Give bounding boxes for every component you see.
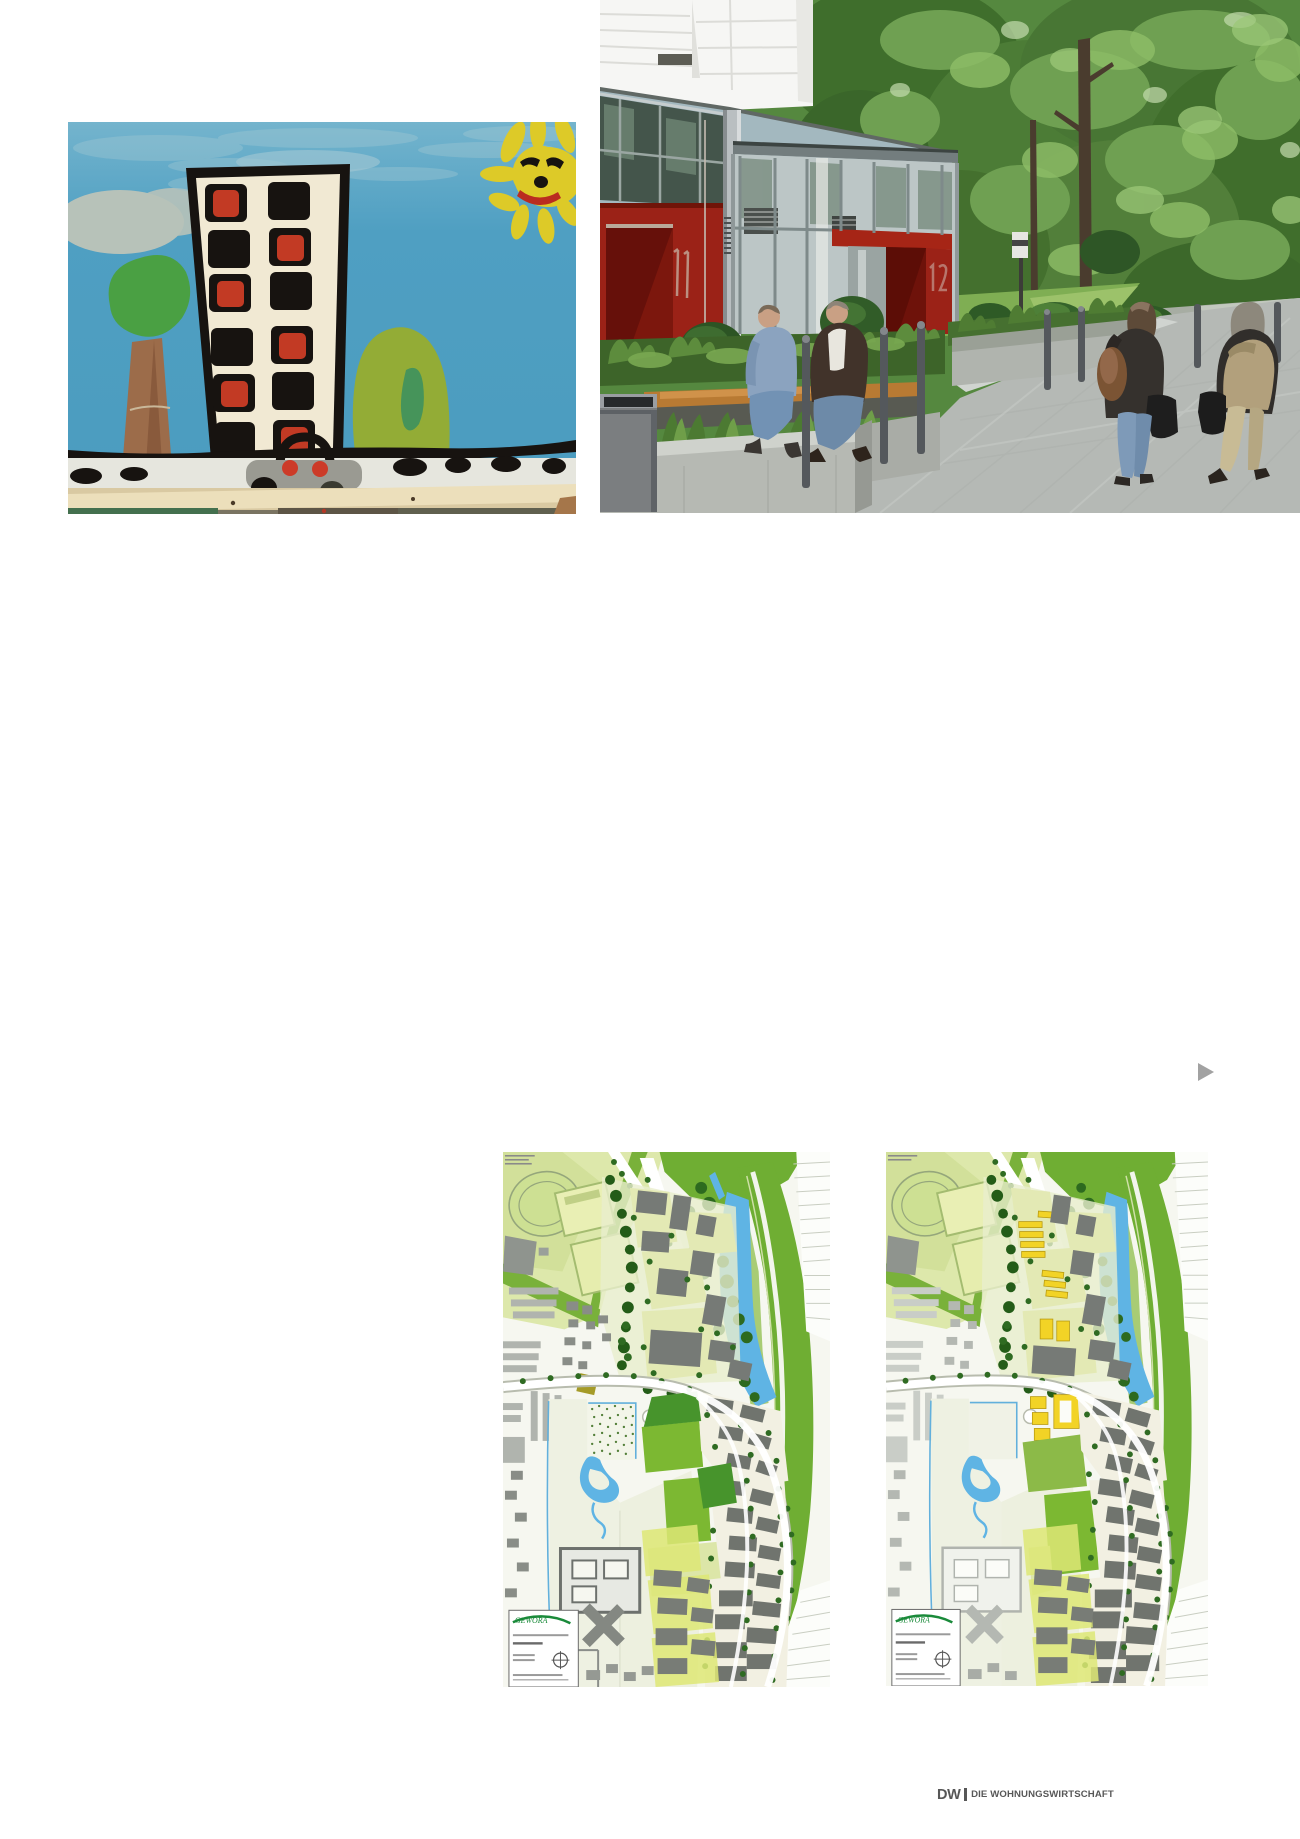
svg-text:GEWORA: GEWORA [515,1616,548,1625]
svg-text:GEWORA: GEWORA [898,1615,930,1624]
